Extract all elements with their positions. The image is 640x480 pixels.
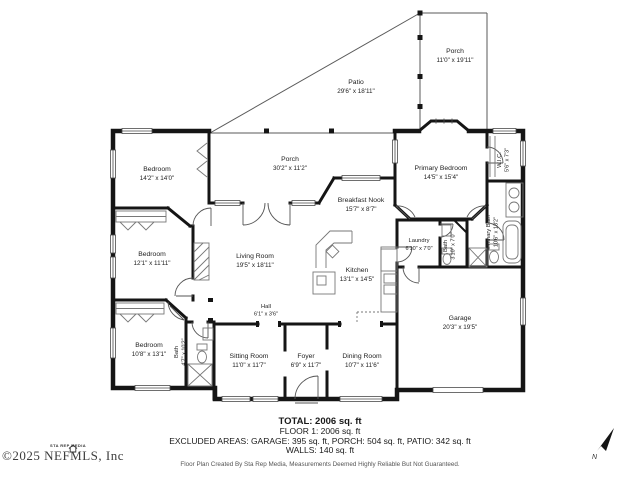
- label-hall: Hall: [261, 304, 271, 310]
- label-bedroom4: Bedroom: [135, 342, 163, 349]
- floor-plan-svg: Patio 29'6" x 18'11" Porch 11'0" x 19'11…: [0, 0, 640, 480]
- summary-disclaimer: Floor Plan Created By Sta Rep Media, Mea…: [40, 461, 600, 468]
- label-bath1: Bath: [174, 346, 180, 358]
- label-sitting-room: Sitting Room: [230, 353, 269, 360]
- label-patio-dims: 29'6" x 18'11": [337, 88, 375, 95]
- label-bedroom2: Bedroom: [143, 166, 171, 173]
- label-primary-bath: Primary Bath: [486, 215, 492, 249]
- summary-walls: WALLS: 140 sq. ft: [40, 446, 600, 456]
- label-garage-dims: 20'3" x 19'5": [443, 324, 478, 331]
- label-wic-dims: 5'6" x 7'3": [505, 148, 511, 172]
- label-bedroom4-dims: 10'8" x 13'1": [132, 351, 167, 358]
- label-dining-room-dims: 10'7" x 11'6": [345, 362, 379, 369]
- label-dining-room: Dining Room: [342, 353, 382, 360]
- label-hall-dims: 6'1" x 3'6": [254, 312, 278, 318]
- label-wic: W.I.C.: [497, 152, 503, 168]
- label-bedroom2-dims: 14'2" x 14'0": [140, 175, 175, 182]
- label-primary-bath-dims: 10'6" x 13'2": [494, 217, 500, 247]
- label-living-room-dims: 19'5" x 18'11": [236, 262, 274, 269]
- label-primary-bedroom: Primary Bedroom: [415, 165, 468, 172]
- label-porch-main-dims: 30'2" x 11'2": [273, 165, 307, 172]
- label-porch-main: Porch: [281, 156, 299, 163]
- fireplace: [194, 243, 209, 280]
- label-laundry-dims: 6'10" x 7'0": [405, 246, 432, 252]
- label-garage: Garage: [449, 315, 472, 322]
- label-kitchen: Kitchen: [346, 267, 369, 274]
- label-bedroom3: Bedroom: [138, 251, 166, 258]
- label-breakfast-nook-dims: 15'7" x 8'7": [345, 206, 376, 213]
- floor-plan-page: Patio 29'6" x 18'11" Porch 11'0" x 19'11…: [0, 0, 640, 480]
- label-laundry: Laundry: [409, 238, 430, 244]
- label-porch-rear-dims: 11'0" x 19'11": [436, 57, 473, 64]
- doors: [168, 147, 504, 403]
- label-primary-bedroom-dims: 14'5" x 15'4": [424, 174, 459, 181]
- label-foyer-dims: 6'9" x 11'7": [291, 362, 322, 369]
- hall-bath-fixtures: [188, 328, 213, 386]
- label-patio: Patio: [348, 79, 364, 86]
- label-breakfast-nook: Breakfast Nook: [338, 197, 385, 204]
- label-kitchen-dims: 13'1" x 14'5": [340, 276, 375, 283]
- label-living-room: Living Room: [236, 253, 274, 260]
- label-foyer: Foyer: [297, 353, 315, 360]
- label-sitting-room-dims: 11'0" x 11'7": [232, 362, 266, 369]
- plan-summary: TOTAL: 2006 sq. ft FLOOR 1: 2006 sq. ft …: [40, 417, 600, 468]
- garage-door: [433, 388, 483, 393]
- outdoor-outlines: [210, 11, 487, 134]
- label-bath1-dims: 4'7" x 10'2": [182, 338, 188, 365]
- label-bedroom3-dims: 12'1" x 11'11": [133, 260, 170, 267]
- label-porch-rear: Porch: [446, 48, 464, 55]
- label-bath2-dims: 3'10" x 7'0": [451, 232, 457, 259]
- label-bath2: Bath: [443, 240, 449, 252]
